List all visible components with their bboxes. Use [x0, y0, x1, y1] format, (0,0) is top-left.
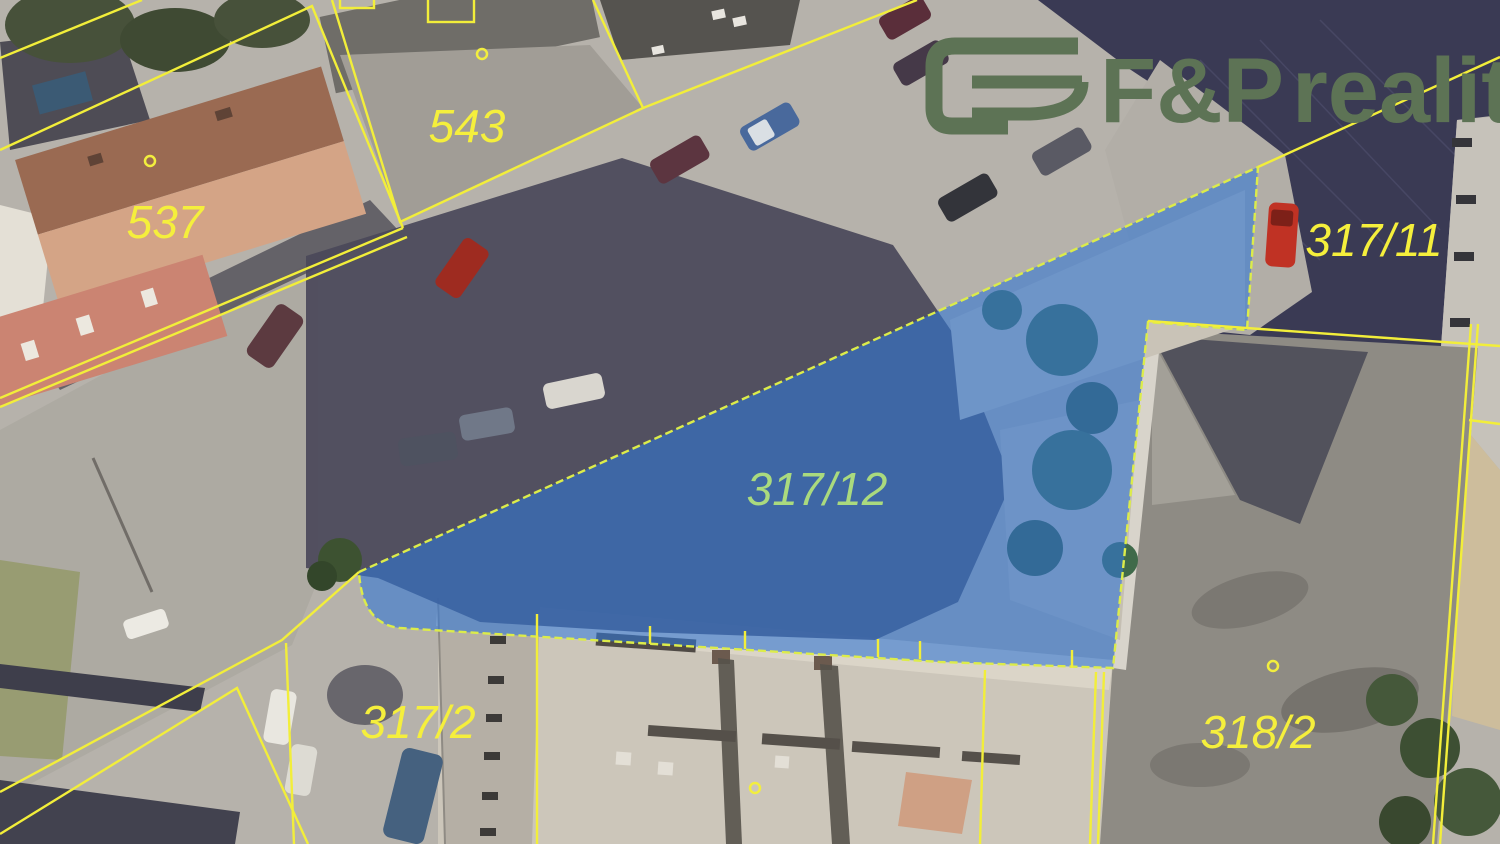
window: [1456, 195, 1476, 204]
parcel-label-318-2: 318/2: [1200, 706, 1315, 758]
orange-roof-section: [898, 772, 972, 834]
window: [1450, 318, 1470, 327]
car-windshield: [1270, 209, 1293, 226]
tree: [1400, 718, 1460, 778]
parcel-label-537: 537: [127, 196, 205, 248]
window: [1454, 252, 1474, 261]
vent: [480, 828, 496, 836]
tree: [1366, 674, 1418, 726]
vent: [490, 636, 506, 644]
logo-suffix-text: reality: [1292, 40, 1500, 142]
aerial-map-svg: 543 537 317/11 317/12 317/2 318/2 F&P re…: [0, 0, 1500, 844]
skylight: [658, 762, 674, 776]
skylight: [616, 752, 632, 766]
vent: [486, 714, 502, 722]
parcel-label-317-12: 317/12: [747, 463, 888, 515]
parcel-label-317-11: 317/11: [1305, 214, 1442, 266]
parcel-label-543: 543: [429, 100, 506, 152]
tree: [307, 561, 337, 591]
skylight: [775, 756, 790, 769]
vent: [484, 752, 500, 760]
vent: [488, 676, 504, 684]
vent: [482, 792, 498, 800]
parcel-label-317-2: 317/2: [360, 696, 475, 748]
logo-brand-text: F&P: [1100, 40, 1284, 142]
tree: [120, 8, 230, 72]
aerial-map-view: 543 537 317/11 317/12 317/2 318/2 F&P re…: [0, 0, 1500, 844]
parking-318-2: [1100, 322, 1500, 844]
